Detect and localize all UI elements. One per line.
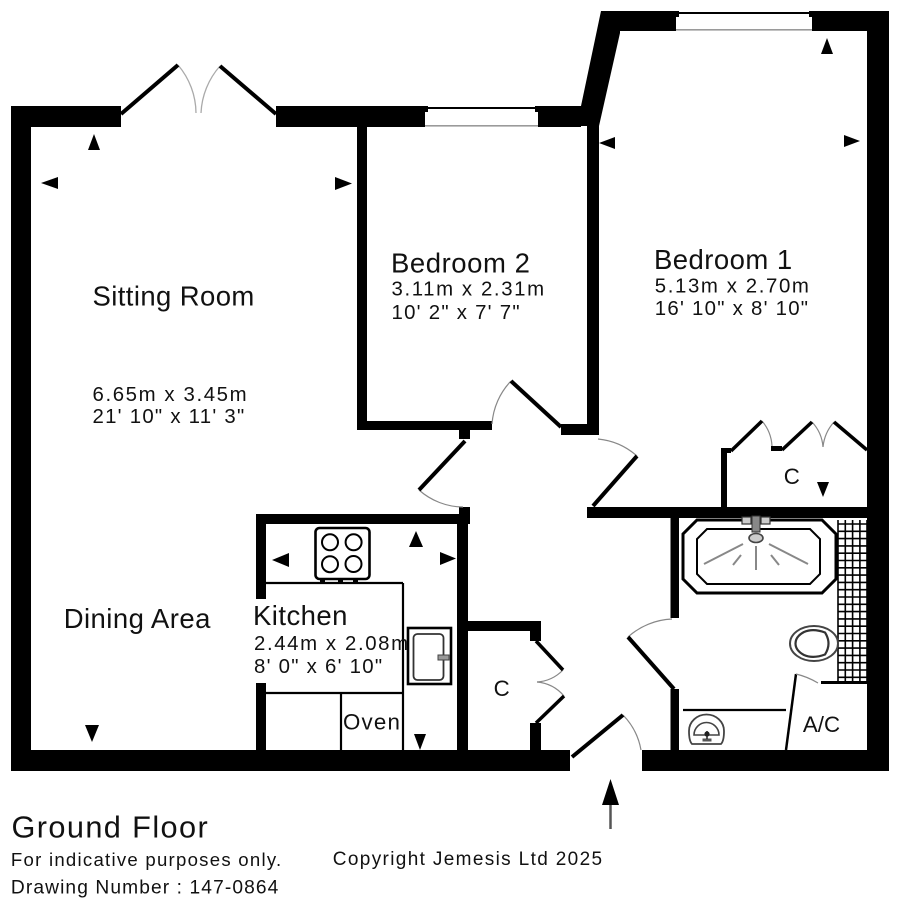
svg-text:Kitchen: Kitchen bbox=[253, 600, 348, 631]
svg-text:C: C bbox=[784, 464, 800, 489]
svg-text:21' 10" x 11' 3": 21' 10" x 11' 3" bbox=[93, 406, 246, 428]
svg-text:6.65m x 3.45m: 6.65m x 3.45m bbox=[93, 384, 249, 406]
svg-text:Dining Area: Dining Area bbox=[64, 603, 211, 634]
svg-text:C: C bbox=[494, 676, 510, 701]
svg-text:10' 2" x 7' 7": 10' 2" x 7' 7" bbox=[392, 302, 521, 324]
svg-text:Ground Floor: Ground Floor bbox=[12, 810, 210, 845]
svg-text:Sitting Room: Sitting Room bbox=[93, 281, 255, 312]
svg-text:For indicative purposes only.: For indicative purposes only. bbox=[11, 849, 283, 870]
svg-text:Oven: Oven bbox=[343, 710, 401, 735]
svg-text:5.13m x 2.70m: 5.13m x 2.70m bbox=[655, 276, 811, 298]
svg-text:2.44m x 2.08m: 2.44m x 2.08m bbox=[254, 633, 410, 655]
svg-text:A/C: A/C bbox=[803, 712, 840, 737]
svg-text:Bedroom 2: Bedroom 2 bbox=[391, 248, 530, 279]
svg-text:Bedroom 1: Bedroom 1 bbox=[654, 244, 793, 275]
svg-text:3.11m x 2.31m: 3.11m x 2.31m bbox=[392, 279, 546, 301]
svg-text:Copyright Jemesis Ltd 2025: Copyright Jemesis Ltd 2025 bbox=[333, 849, 604, 870]
svg-text:8' 0" x 6' 10": 8' 0" x 6' 10" bbox=[254, 656, 383, 678]
svg-text:16' 10" x 8' 10": 16' 10" x 8' 10" bbox=[655, 298, 810, 320]
svg-text:Drawing Number : 147-0864: Drawing Number : 147-0864 bbox=[11, 877, 280, 898]
